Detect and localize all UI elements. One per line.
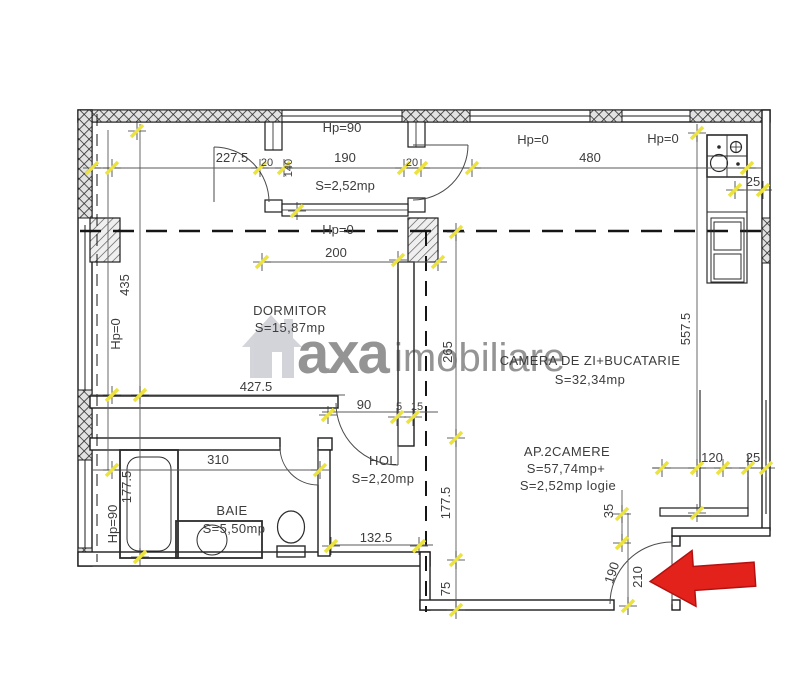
dim-90: 90 (357, 397, 371, 412)
dim-310: 310 (207, 452, 229, 467)
entrance-arrow-icon (648, 546, 757, 609)
apartment-summary-line3: S=2,52mp logie (520, 478, 616, 493)
hp-label-loggia-bottom: Hp=0 (322, 222, 353, 237)
dim-427-5: 427.5 (240, 379, 273, 394)
dim-557-5: 557.5 (678, 313, 693, 346)
dim-265: 265 (440, 341, 455, 363)
floor-plan-page: axa imobiliare (0, 0, 800, 692)
room-label-dormitor: DORMITOR (253, 303, 327, 318)
dim-75: 75 (438, 582, 453, 596)
dim-120: 120 (701, 450, 723, 465)
room-area-baie: S=5,50mp (203, 521, 266, 536)
hp-label-left-upper: Hp=0 (108, 318, 123, 349)
dim-35: 35 (601, 504, 616, 518)
room-label-camera-zi: CAMERA DE ZI+BUCATARIE (500, 353, 681, 368)
dim-15: 15 (411, 401, 423, 413)
dim-25-entry: 25 (746, 450, 760, 465)
hp-label-loggia-top: Hp=90 (323, 120, 362, 135)
stove-icon (707, 135, 747, 177)
dim-190-door: 190 (601, 560, 622, 585)
dim-132-5: 132.5 (360, 530, 393, 545)
dim-177-5-baie: 177.5 (119, 471, 134, 504)
dim-190: 190 (334, 150, 356, 165)
dim-25-counter: 25 (746, 174, 760, 189)
room-area-hol: S=2,20mp (352, 471, 415, 486)
dim-5: 5 (396, 401, 402, 413)
room-label-hol: HOL (369, 453, 397, 468)
hp-label-top-b: Hp=0 (647, 131, 678, 146)
floor-plan: axa imobiliare (0, 0, 800, 692)
apartment-summary-line1: AP.2CAMERE (524, 444, 610, 459)
dim-20a: 20 (261, 157, 273, 169)
dim-200: 200 (325, 245, 347, 260)
dim-227-5: 227.5 (216, 150, 249, 165)
room-area-camera-zi: S=32,34mp (555, 372, 625, 387)
hp-label-left-lower: Hp=90 (105, 505, 120, 544)
dim-435: 435 (117, 274, 132, 296)
dim-20b: 20 (406, 157, 418, 169)
room-area-dormitor: S=15,87mp (255, 320, 325, 335)
room-label-baie: BAIE (216, 503, 247, 518)
dim-177-5-hol: 177.5 (438, 487, 453, 520)
apartment-summary-line2: S=57,74mp+ (527, 461, 605, 476)
dim-210: 210 (630, 566, 645, 588)
room-area-logie: S=2,52mp (315, 178, 375, 193)
hp-label-top-a: Hp=0 (517, 132, 548, 147)
dim-480: 480 (579, 150, 601, 165)
toilet (277, 511, 305, 557)
dim-140: 140 (283, 159, 295, 177)
